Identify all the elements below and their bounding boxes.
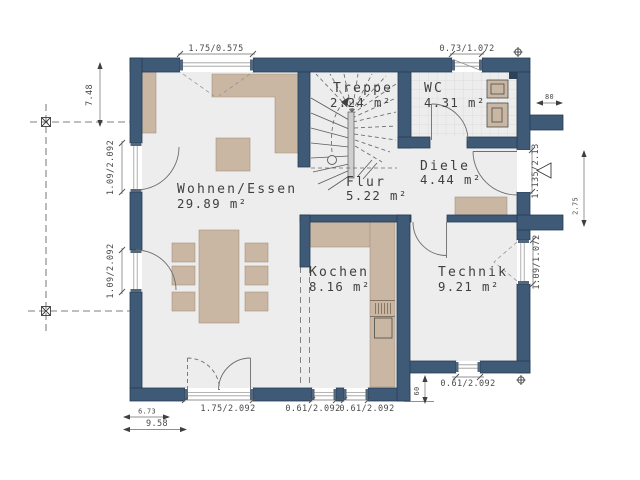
svg-text:1.135/2.13: 1.135/2.13 <box>531 143 541 198</box>
coffee-table <box>216 138 250 171</box>
svg-text:6.73: 6.73 <box>138 408 156 416</box>
dim-window-technik-bottom: 0.61/2.092 <box>440 374 495 389</box>
floor-plan-canvas: 1.75/0.575 0.73/1.072 80 1.135/2.13 <box>0 0 640 480</box>
svg-text:9.21 m²: 9.21 m² <box>438 280 500 294</box>
duct-shaft <box>509 72 517 79</box>
dim-window-technik-right: 1.09/1.072 <box>530 234 542 289</box>
window-wc-top <box>452 58 482 72</box>
dim-door-left-lower: 1.09/2.092 <box>106 243 125 298</box>
chair <box>172 243 195 262</box>
kitchen-counter-column <box>370 222 395 387</box>
dim-entry-door: 1.135/2.13 <box>529 143 541 198</box>
chair <box>245 292 268 311</box>
dim-width-total: 9.58 <box>123 419 187 432</box>
svg-text:Diele: Diele <box>420 159 470 174</box>
svg-text:2.24 m²: 2.24 m² <box>330 96 392 110</box>
svg-text:0.61/2.092: 0.61/2.092 <box>285 404 340 414</box>
svg-text:29.89 m²: 29.89 m² <box>177 197 247 211</box>
svg-text:Kochen: Kochen <box>309 265 369 280</box>
room-label-kochen: Kochen 8.16 m² <box>309 265 371 294</box>
dim-window-living-top: 1.75/0.575 <box>177 44 256 57</box>
dim-stub-top-right: 80 <box>536 93 563 106</box>
svg-text:80: 80 <box>545 93 554 101</box>
dining-table <box>199 230 239 323</box>
svg-text:60: 60 <box>413 387 421 396</box>
window-technik-bottom <box>456 361 480 373</box>
diele-sideboard <box>455 197 507 215</box>
window-kochen-right <box>344 388 368 401</box>
svg-text:1.75/2.092: 1.75/2.092 <box>200 404 255 414</box>
svg-text:8.16 m²: 8.16 m² <box>309 280 371 294</box>
svg-text:WC: WC <box>424 81 444 96</box>
survey-point-icon <box>517 375 526 385</box>
svg-text:Treppe: Treppe <box>333 81 393 96</box>
svg-text:1.75/0.575: 1.75/0.575 <box>188 44 243 54</box>
dim-window-wc-top: 0.73/1.072 <box>439 44 494 57</box>
kitchen-counter-top <box>310 222 370 247</box>
wall-stub-mid-right <box>517 215 563 230</box>
stair-newel-post <box>328 156 337 165</box>
survey-point-icon <box>514 47 523 57</box>
toilet <box>487 103 508 127</box>
dim-right-vertical: 2.75 <box>572 150 587 227</box>
sideboard-left-wall <box>142 72 156 133</box>
room-label-technik: Technik 9.21 m² <box>438 265 508 294</box>
svg-text:1.09/2.092: 1.09/2.092 <box>106 140 116 195</box>
chair <box>245 266 268 285</box>
svg-text:2.75: 2.75 <box>572 197 580 215</box>
svg-text:Flur: Flur <box>346 175 386 190</box>
floor-plan-page: 1.75/0.575 0.73/1.072 80 1.135/2.13 <box>0 0 640 480</box>
dim-width-partial: 6.73 <box>123 408 170 420</box>
svg-text:7.48: 7.48 <box>85 84 95 106</box>
svg-text:1.09/2.092: 1.09/2.092 <box>106 243 116 298</box>
svg-text:4.31 m²: 4.31 m² <box>424 96 486 110</box>
wall-stub-top-right <box>530 115 563 130</box>
dim-door-left-upper: 1.09/2.092 <box>106 140 125 195</box>
svg-text:5.22 m²: 5.22 m² <box>346 189 408 203</box>
washbasin <box>487 80 508 98</box>
room-label-treppe: Treppe 2.24 m² <box>330 81 393 110</box>
svg-text:1.09/1.072: 1.09/1.072 <box>532 234 542 289</box>
svg-text:Technik: Technik <box>438 265 508 280</box>
svg-text:4.44 m²: 4.44 m² <box>420 173 482 187</box>
chair <box>172 292 195 311</box>
svg-text:0.73/1.072: 0.73/1.072 <box>439 44 494 54</box>
dim-left-vertical: 7.48 <box>85 62 103 127</box>
window-kochen-left <box>312 388 336 401</box>
svg-text:Wohnen/Essen: Wohnen/Essen <box>177 182 297 197</box>
chair <box>245 243 268 262</box>
svg-text:0.61/2.092: 0.61/2.092 <box>339 404 394 414</box>
svg-text:9.58: 9.58 <box>146 419 168 429</box>
svg-text:0.61/2.092: 0.61/2.092 <box>440 379 495 389</box>
